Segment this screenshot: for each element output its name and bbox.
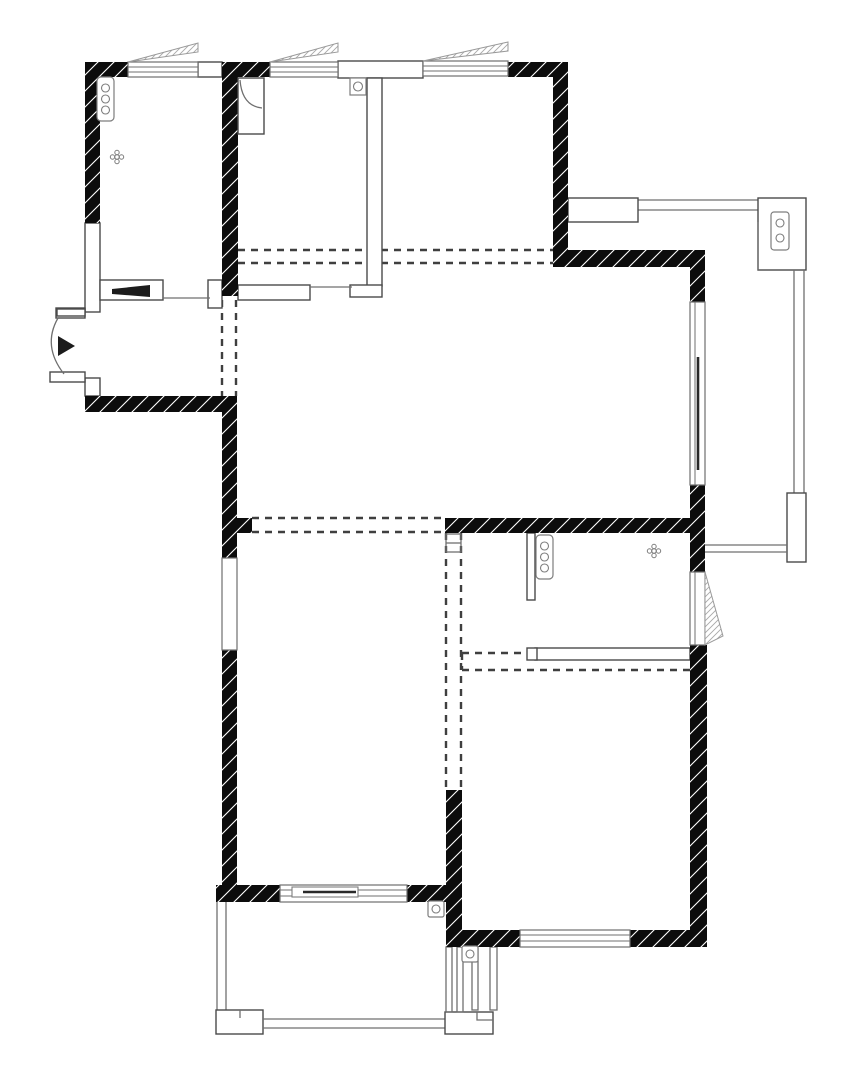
socket-triple-icon — [536, 535, 553, 579]
casement-window-top-1 — [128, 62, 198, 77]
casement-window-right — [690, 572, 705, 645]
entry-door-leaf — [57, 309, 85, 316]
balcony-parapet-west — [568, 198, 638, 222]
entry-arrow-icon — [58, 336, 75, 356]
corner-door-room2 — [238, 78, 264, 134]
sliding-door-right-balcony — [690, 302, 705, 485]
socket-single-icon — [428, 901, 444, 917]
partition-walls — [50, 61, 690, 660]
casement-window-top-3 — [423, 61, 508, 76]
casement-window-top-2 — [270, 62, 338, 77]
socket-single-icon — [462, 946, 478, 962]
socket-triple-icon — [97, 77, 114, 121]
swing-top-2 — [270, 43, 338, 62]
swing-top-3 — [423, 42, 508, 61]
ceiling-light-icon — [647, 544, 660, 557]
wall-section-marker — [446, 534, 461, 552]
entry-door — [51, 309, 85, 374]
balcony-post-southeast-block — [445, 1012, 493, 1034]
swing-top-1 — [128, 43, 198, 62]
window-swings — [128, 42, 723, 645]
balcony-post-southeast — [787, 493, 806, 562]
sliding-door-bottom-balcony — [280, 885, 407, 902]
ceiling-light-icon — [110, 150, 123, 163]
socket-single-icon — [350, 78, 366, 95]
window-bottom-right-room — [520, 930, 630, 947]
socket-double-icon — [771, 212, 789, 250]
windows — [128, 61, 705, 947]
exterior-walls — [85, 62, 707, 947]
floor-plan-page — [0, 0, 860, 1090]
fixed-window-left — [222, 558, 237, 650]
floor-plan-canvas — [0, 0, 860, 1090]
swing-right — [705, 572, 723, 645]
